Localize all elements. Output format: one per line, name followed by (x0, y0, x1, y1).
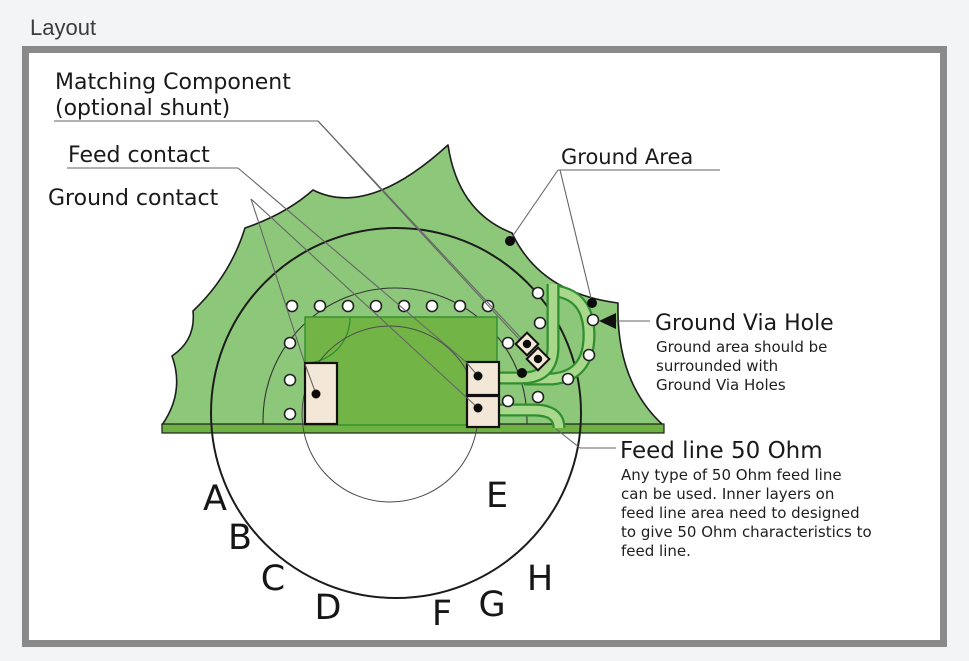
ground-area-label: Ground Area (561, 145, 693, 169)
matching-component-label-line1: Matching Component (55, 70, 291, 95)
ground-stitch-dot (517, 368, 527, 378)
via-hole (285, 338, 296, 349)
via-hole (315, 301, 326, 312)
feed-pad-lower-dot (474, 404, 483, 413)
feed-contact-label: Feed contact (68, 143, 210, 168)
ground-via-hole-note-3: Ground Via Holes (656, 376, 786, 394)
matching-pad-1-dot (523, 340, 531, 348)
page-title: Layout (30, 15, 96, 40)
layout-figure: Layout (0, 0, 969, 661)
via-hole (287, 301, 298, 312)
ground-via-hole-label: Ground Via Hole (655, 311, 834, 336)
via-hole (535, 318, 546, 329)
matching-pad-2-dot (534, 355, 542, 363)
ground-contact-label: Ground contact (48, 186, 219, 211)
position-letter-a: A (203, 479, 227, 519)
via-hole-arrow-target (588, 315, 599, 326)
via-hole (533, 288, 544, 299)
feed-pad-upper-dot (474, 372, 483, 381)
feed-line-note-4: to give 50 Ohm characteristics to (621, 523, 872, 541)
feed-line-note-5: feed line. (621, 542, 691, 560)
ground-via-hole-note-2: surrounded with (656, 357, 778, 375)
position-letter-c: C (261, 559, 285, 599)
ground-area-dot-2 (587, 298, 597, 308)
ground-area-dot-1 (505, 236, 515, 246)
via-hole (343, 301, 354, 312)
screenshot-root: Layout (0, 0, 969, 661)
ground-via-hole-note-1: Ground area should be (656, 338, 827, 356)
feed-line-note-2: can be used. Inner layers on (621, 485, 834, 503)
via-hole (503, 338, 514, 349)
position-letter-b: B (228, 518, 252, 558)
position-letter-e: E (486, 476, 508, 516)
feed-line-label: Feed line 50 Ohm (620, 438, 823, 464)
via-hole (427, 301, 438, 312)
ground-contact-pad (305, 363, 337, 424)
feed-contact-pad-lower (467, 396, 499, 427)
via-hole (455, 301, 466, 312)
position-letter-d: D (315, 588, 342, 628)
feed-line-note-3: feed line area need to designed (621, 504, 860, 522)
matching-component-label-line2: (optional shunt) (55, 96, 230, 121)
position-letter-f: F (432, 594, 452, 634)
ground-pad-dot (312, 390, 321, 399)
feed-contact-pad-upper (467, 362, 499, 395)
via-hole (285, 375, 296, 386)
feed-line-note-1: Any type of 50 Ohm feed line (621, 466, 842, 484)
position-letter-h: H (527, 559, 553, 599)
via-hole (503, 396, 514, 407)
via-hole (584, 350, 595, 361)
position-letter-g: G (478, 585, 505, 625)
via-hole (533, 392, 544, 403)
via-hole (563, 374, 574, 385)
via-hole (285, 409, 296, 420)
